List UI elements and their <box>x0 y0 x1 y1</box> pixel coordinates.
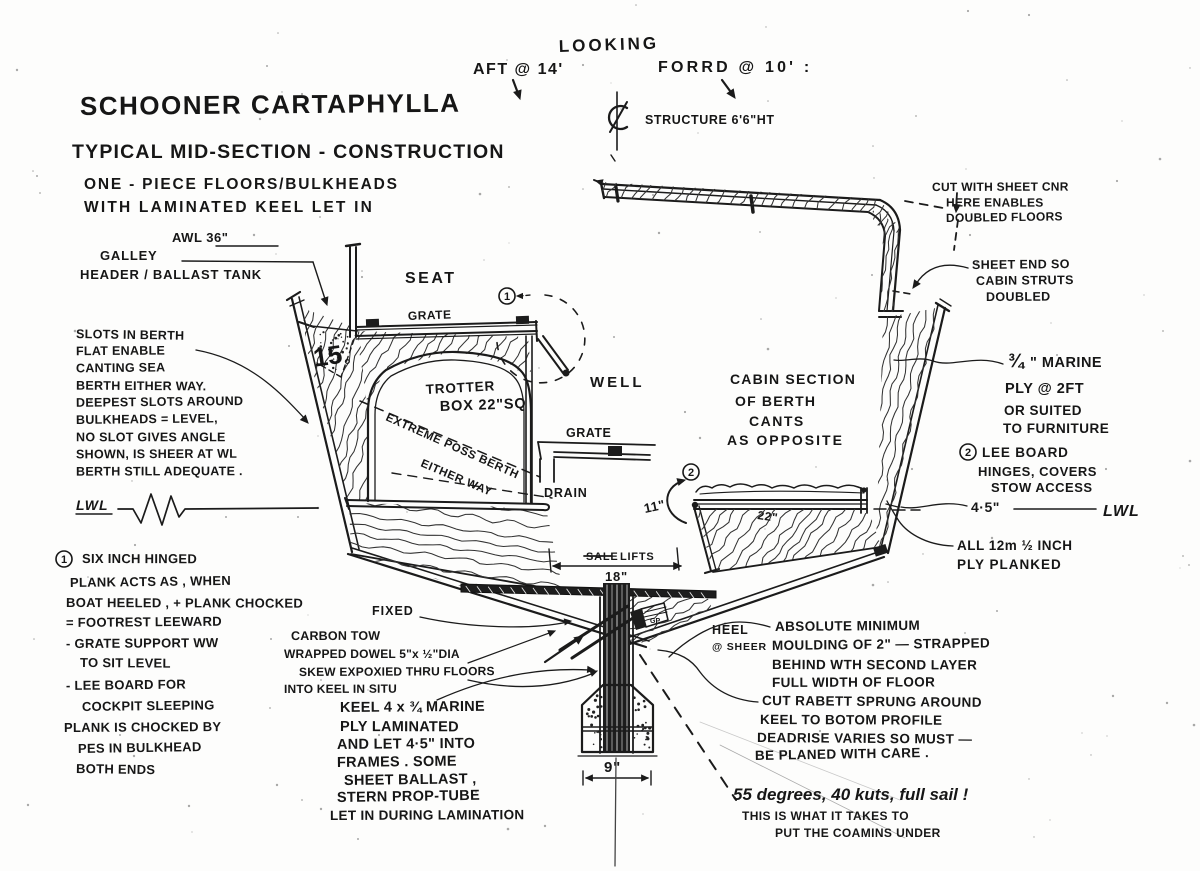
svg-text:DOUBLED FLOORS: DOUBLED FLOORS <box>946 209 1063 225</box>
svg-text:BEHIND WTH SECOND LAYER: BEHIND WTH SECOND LAYER <box>772 657 977 672</box>
svg-text:STERN PROP-TUBE: STERN PROP-TUBE <box>337 788 480 806</box>
svg-text:PLY LAMINATED: PLY LAMINATED <box>340 719 459 735</box>
svg-text:9": 9" <box>604 759 621 776</box>
svg-text:" MARINE: " MARINE <box>1030 355 1102 371</box>
svg-text:THIS IS WHAT IT TAKES TO: THIS IS WHAT IT TAKES TO <box>742 809 909 823</box>
svg-text:BOAT HEELED , + PLANK CHOCKED: BOAT HEELED , + PLANK CHOCKED <box>66 595 303 611</box>
svg-text:SKEW EXPOXIED THRU FLOORS: SKEW EXPOXIED THRU FLOORS <box>299 664 495 679</box>
svg-text:TO SIT LEVEL: TO SIT LEVEL <box>80 655 171 671</box>
svg-text:SIX INCH HINGED: SIX INCH HINGED <box>82 551 197 566</box>
svg-text:18": 18" <box>605 569 628 584</box>
svg-text:LWL: LWL <box>1103 503 1140 520</box>
svg-text:CABIN SECTION: CABIN SECTION <box>730 371 856 387</box>
svg-text:SHOWN, IS SHEER AT WL: SHOWN, IS SHEER AT WL <box>76 447 237 462</box>
svg-text:DEEPEST SLOTS AROUND: DEEPEST SLOTS AROUND <box>76 394 244 410</box>
svg-text:BOX 22"SQ: BOX 22"SQ <box>440 396 527 415</box>
svg-text:GRATE: GRATE <box>566 426 611 440</box>
svg-text:FRAMES . SOME: FRAMES . SOME <box>337 754 457 771</box>
svg-text:KEEL 4 x ¾ MARINE: KEEL 4 x ¾ MARINE <box>340 699 485 716</box>
svg-text:COCKPIT SLEEPING: COCKPIT SLEEPING <box>82 697 215 714</box>
svg-text:HEADER / BALLAST TANK: HEADER / BALLAST TANK <box>80 267 262 282</box>
svg-text:CARBON TOW: CARBON TOW <box>291 629 380 643</box>
svg-text:LIFTS: LIFTS <box>620 551 655 563</box>
svg-text:OF BERTH: OF BERTH <box>735 393 816 409</box>
svg-text:2: 2 <box>965 447 971 459</box>
svg-text:KEEL TO BOTOM PROFILE: KEEL TO BOTOM PROFILE <box>760 712 942 728</box>
svg-text:1: 1 <box>61 554 67 566</box>
svg-text:LOOKING: LOOKING <box>558 34 659 56</box>
svg-text:GALLEY: GALLEY <box>100 248 158 263</box>
svg-text:SHEET BALLAST ,: SHEET BALLAST , <box>344 771 477 789</box>
svg-text:TYPICAL MID-SECTION - CONST: TYPICAL MID-SECTION - CONSTRUCTION <box>72 141 505 163</box>
svg-text:4·5": 4·5" <box>971 499 1000 515</box>
svg-text:¾: ¾ <box>1008 351 1026 372</box>
svg-text:SHEET END SO: SHEET END SO <box>972 257 1070 272</box>
svg-text:BERTH STILL ADEQUATE .: BERTH STILL ADEQUATE . <box>76 464 243 478</box>
svg-text:PLY PLANKED: PLY PLANKED <box>957 557 1062 572</box>
svg-text:AFT @ 14': AFT @ 14' <box>473 61 564 78</box>
svg-text:FORRD @ 10' :: FORRD @ 10' : <box>658 59 812 76</box>
svg-text:BE PLANED WITH CARE .: BE PLANED WITH CARE . <box>755 745 929 763</box>
svg-text:INTO KEEL IN SITU: INTO KEEL IN SITU <box>284 682 397 696</box>
svg-text:FULL WIDTH OF FLOOR: FULL WIDTH OF FLOOR <box>772 674 935 690</box>
svg-text:GRATE: GRATE <box>408 307 452 323</box>
svg-text:FLAT ENABLE: FLAT ENABLE <box>76 344 165 359</box>
svg-text:BERTH EITHER WAY.: BERTH EITHER WAY. <box>76 379 206 394</box>
svg-text:1: 1 <box>504 291 510 303</box>
svg-text:@ SHEER: @ SHEER <box>712 641 767 653</box>
svg-text:LET IN DURING LAMINATION: LET IN DURING LAMINATION <box>330 807 524 823</box>
svg-text:- LEE BOARD FOR: - LEE BOARD FOR <box>66 677 187 693</box>
svg-text:MOULDING OF 2" — STRAPPED: MOULDING OF 2" — STRAPPED <box>772 635 990 653</box>
svg-text:PUT THE COAMINS UNDER: PUT THE COAMINS UNDER <box>775 826 941 840</box>
svg-text:CUT RABETT SPRUNG AROUND: CUT RABETT SPRUNG AROUND <box>762 693 982 710</box>
svg-text:BULKHEADS = LEVEL,: BULKHEADS = LEVEL, <box>76 411 218 427</box>
svg-text:SEAT: SEAT <box>405 270 456 287</box>
svg-text:15: 15 <box>311 339 344 373</box>
svg-text:HERE ENABLES: HERE ENABLES <box>946 196 1044 210</box>
svg-text:WELL: WELL <box>590 374 645 391</box>
svg-text:PLY @ 2FT: PLY @ 2FT <box>1005 381 1084 397</box>
svg-text:CANTING SEA: CANTING SEA <box>76 360 166 375</box>
svg-text:2: 2 <box>688 467 694 479</box>
svg-text:DEADRISE VARIES SO MUST —: DEADRISE VARIES SO MUST — <box>757 730 972 747</box>
svg-text:CUT WITH SHEET CNR: CUT WITH SHEET CNR <box>932 180 1069 194</box>
svg-text:DRAIN: DRAIN <box>544 486 588 500</box>
svg-text:PLANK ACTS AS , WHEN: PLANK ACTS AS , WHEN <box>70 573 231 590</box>
svg-text:CANTS: CANTS <box>749 413 805 429</box>
svg-text:= FOOTREST LEEWARD: = FOOTREST LEEWARD <box>66 614 222 630</box>
svg-text:WRAPPED DOWEL 5"x ½"DIA: WRAPPED DOWEL 5"x ½"DIA <box>284 647 460 661</box>
svg-text:FIXED: FIXED <box>372 604 414 618</box>
svg-text:GP: GP <box>650 618 660 625</box>
svg-text:CABIN STRUTS: CABIN STRUTS <box>976 273 1074 288</box>
svg-text:AS OPPOSITE: AS OPPOSITE <box>727 432 844 448</box>
svg-text:PES IN BULKHEAD: PES IN BULKHEAD <box>78 739 202 756</box>
svg-text:LWL: LWL <box>76 497 109 513</box>
svg-text:ONE - PIECE FLOORS/BULKHEADS: ONE - PIECE FLOORS/BULKHEADS <box>84 176 399 193</box>
svg-text:SLOTS IN BERTH: SLOTS IN BERTH <box>76 327 185 343</box>
svg-text:OR SUITED: OR SUITED <box>1004 403 1082 418</box>
svg-text:DOUBLED: DOUBLED <box>986 290 1051 304</box>
svg-text:WITH LAMINATED KEEL LET IN: WITH LAMINATED KEEL LET IN <box>84 199 374 216</box>
svg-text:LEE BOARD: LEE BOARD <box>982 445 1069 460</box>
svg-text:PLANK IS CHOCKED BY: PLANK IS CHOCKED BY <box>64 719 221 735</box>
svg-text:AND LET 4·5" INTO: AND LET 4·5" INTO <box>337 736 475 753</box>
svg-text:HINGES, COVERS: HINGES, COVERS <box>978 464 1097 479</box>
svg-text:STRUCTURE 6'6"HT: STRUCTURE 6'6"HT <box>645 113 775 127</box>
svg-text:NO SLOT GIVES ANGLE: NO SLOT GIVES ANGLE <box>76 430 226 444</box>
svg-text:55 degrees, 40 kuts, full sail: 55 degrees, 40 kuts, full sail ! <box>733 785 969 804</box>
svg-text:SALE: SALE <box>586 551 619 563</box>
svg-text:TO FURNITURE: TO FURNITURE <box>1003 421 1109 436</box>
svg-text:ALL 12m ½ INCH: ALL 12m ½ INCH <box>957 538 1073 553</box>
svg-text:STOW ACCESS: STOW ACCESS <box>991 480 1093 495</box>
svg-text:BOTH ENDS: BOTH ENDS <box>76 761 156 777</box>
svg-text:ABSOLUTE MINIMUM: ABSOLUTE MINIMUM <box>775 618 920 634</box>
svg-text:- GRATE SUPPORT WW: - GRATE SUPPORT WW <box>66 635 219 651</box>
svg-text:AWL 36": AWL 36" <box>172 230 228 245</box>
svg-text:SCHOONER CARTAPHYLLA: SCHOONER CARTAPHYLLA <box>80 88 461 121</box>
